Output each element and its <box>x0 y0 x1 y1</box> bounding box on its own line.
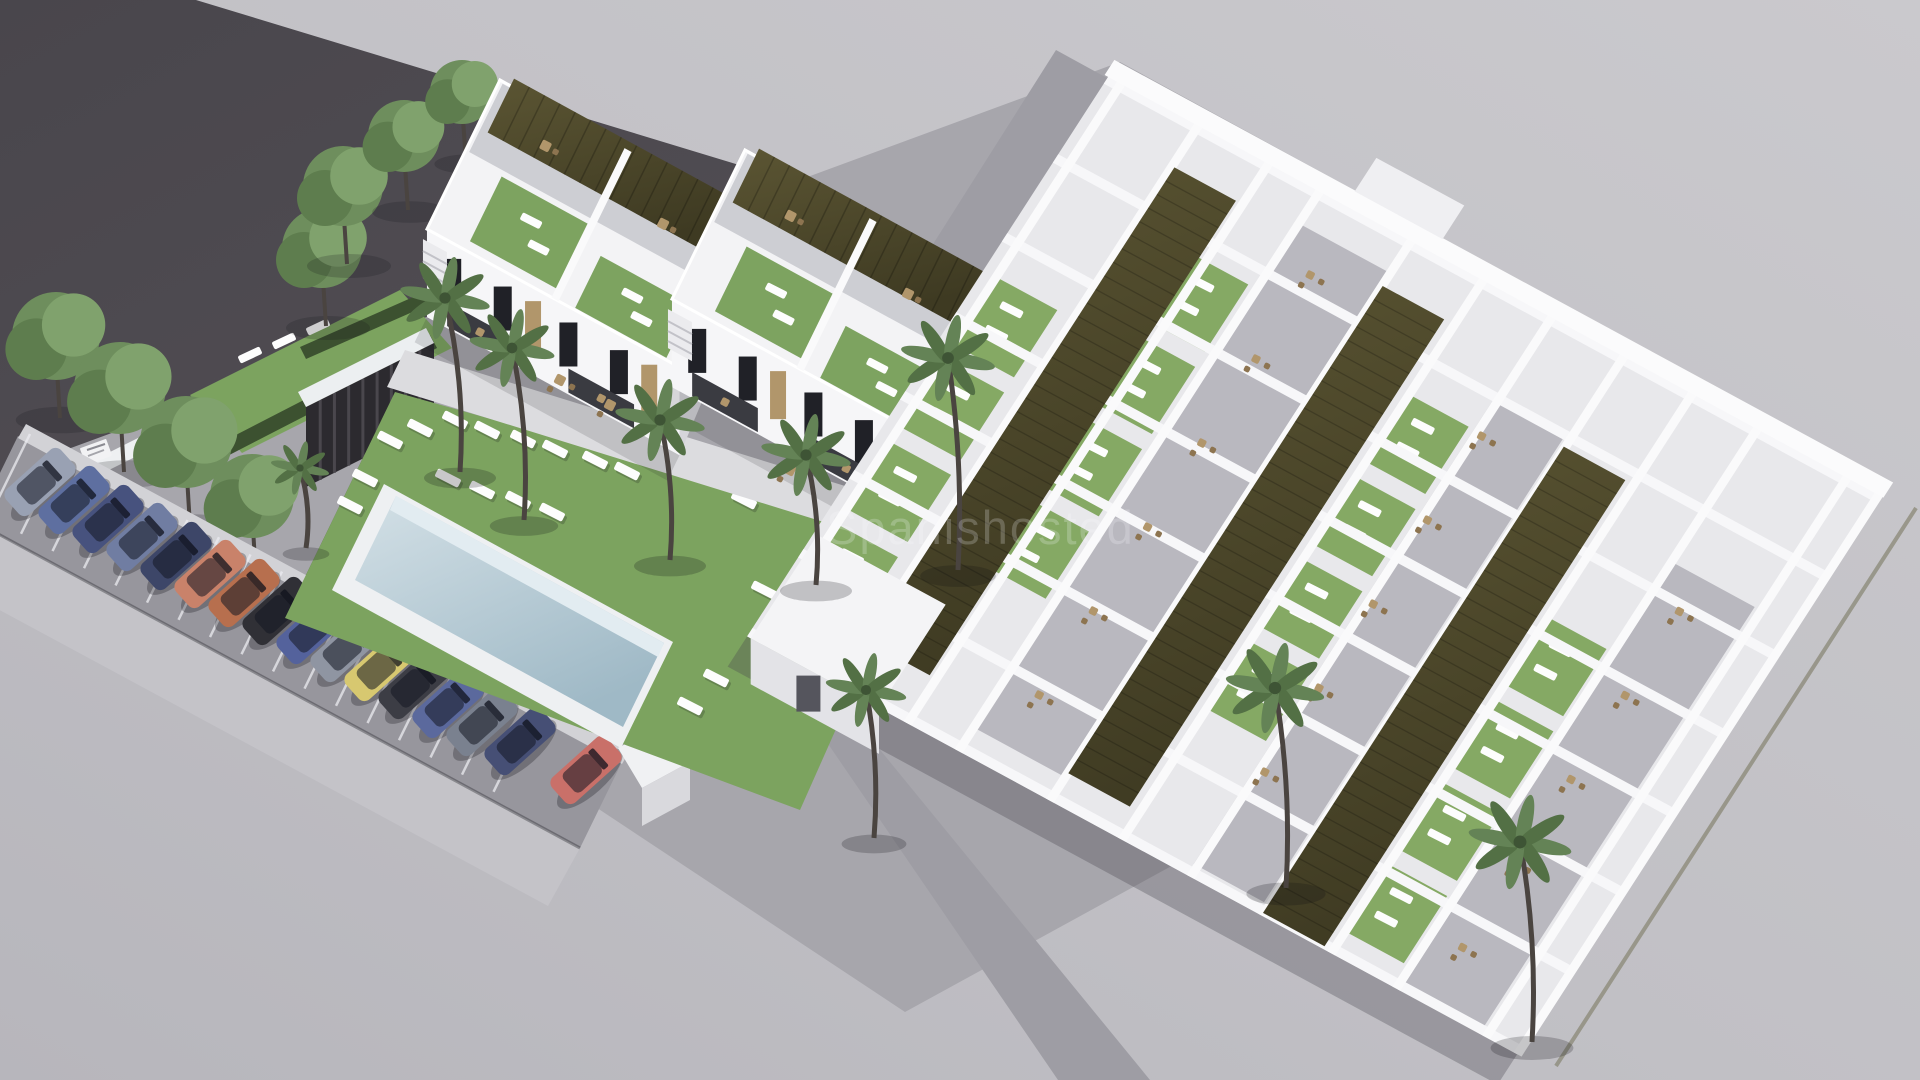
tree-shadow <box>307 254 391 278</box>
tree-shadow <box>286 316 370 340</box>
palm-crown-core <box>654 414 665 425</box>
architectural-render-image <box>0 0 1920 1080</box>
tree-foliage <box>171 397 237 463</box>
palm-crown-core <box>1514 836 1527 849</box>
palm-shadow <box>283 547 330 561</box>
tree-foliage <box>42 293 105 356</box>
palm-crown-core <box>942 352 954 364</box>
palm-crown-core <box>296 464 303 471</box>
palm-crown-core <box>800 449 811 460</box>
entrance-door <box>796 676 820 712</box>
facade-accent-panel <box>770 371 786 419</box>
window <box>610 350 628 394</box>
palm-crown-core <box>507 343 518 354</box>
window <box>739 357 757 401</box>
tree-foliage <box>105 343 171 409</box>
palm-crown-core <box>439 292 450 303</box>
render-viewport: Spanishosted <box>0 0 1920 1080</box>
palm-crown-core <box>1269 682 1281 694</box>
palm-crown-core <box>861 685 871 695</box>
window <box>559 322 577 366</box>
